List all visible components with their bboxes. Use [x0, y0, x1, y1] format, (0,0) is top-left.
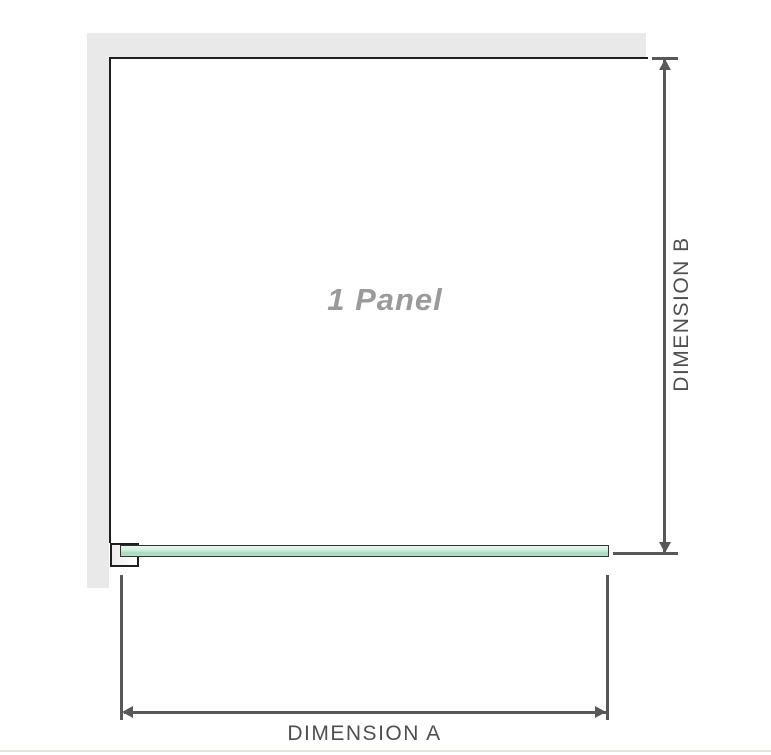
dim-a-extension-line-left: [120, 575, 123, 720]
panel-label: 1 Panel: [327, 282, 443, 318]
dim-a-arrow-left-icon: [122, 706, 133, 718]
dim-b-arrow-up-icon: [659, 59, 671, 70]
dim-a-label: DIMENSION A: [287, 722, 441, 745]
dim-b-line: [663, 60, 666, 553]
dim-b-label: DIMENSION B: [670, 236, 693, 391]
dim-b-arrow-down-icon: [659, 542, 671, 553]
dim-a-arrow-right-icon: [595, 706, 606, 718]
wall-strip-left: [87, 33, 109, 588]
dim-a-line: [124, 711, 606, 714]
bottom-divider: [0, 750, 771, 752]
dim-b-label-container: DIMENSION B: [670, 164, 692, 464]
panel-area: 1 Panel: [111, 57, 659, 543]
dim-a-label-container: DIMENSION A: [122, 722, 607, 746]
glass-panel-bar: [120, 545, 609, 557]
wall-strip-top: [87, 33, 646, 57]
dim-a-extension-line-right: [606, 575, 609, 720]
